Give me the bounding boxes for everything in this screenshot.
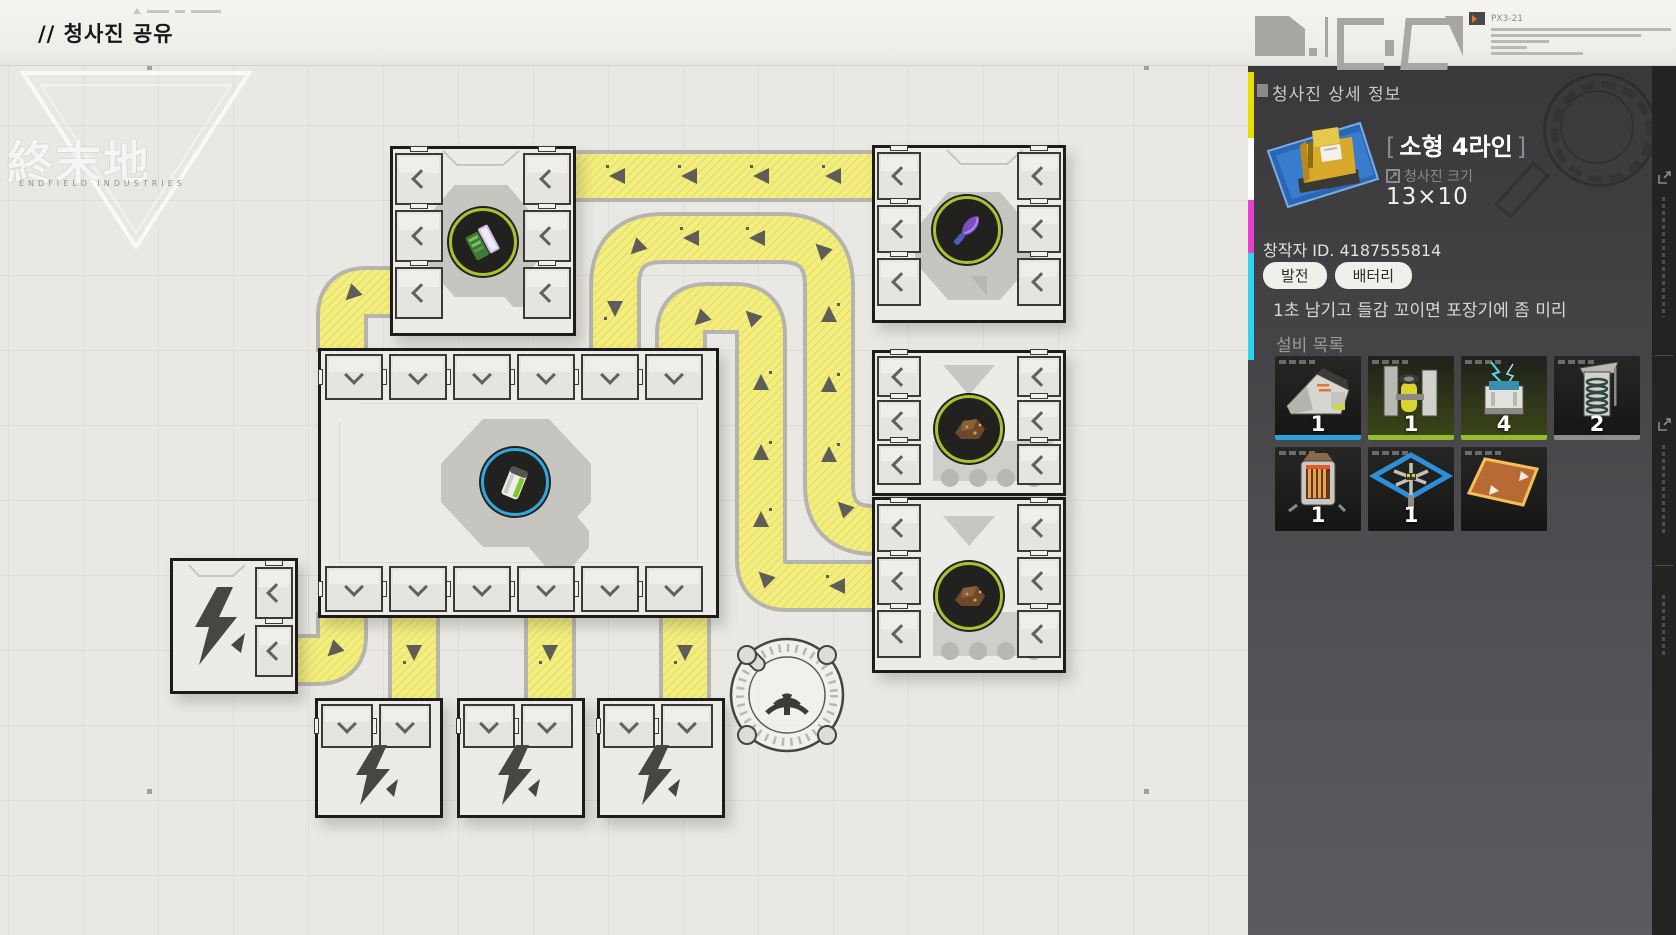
tile-color-bar [1554,435,1640,440]
chevron-left-icon [411,283,431,303]
tile-color-bar [1461,435,1547,440]
bracket: ] [1513,133,1530,161]
triangle-mark-icon [133,8,141,14]
equipment-count: 4 [1461,412,1547,436]
chevron-left-icon [891,624,911,644]
chevron-left-icon [1031,571,1051,591]
equipment-count: 2 [1554,412,1640,436]
creator-id: 창작자 ID. 4187555814 [1263,237,1441,261]
port [389,354,447,400]
port [1017,504,1061,552]
lightning-icon [492,745,552,813]
chevron-down-icon [536,365,556,385]
accent-bar-white [1248,138,1254,200]
strip-divider [1655,565,1673,566]
equipment-tile-generator[interactable]: 4 [1461,356,1547,440]
chevron-down-icon [408,577,428,597]
chevron-left-icon [411,226,431,246]
accent-bar-magenta [1248,200,1254,253]
chevron-left-icon [891,272,911,292]
building-power-plant-3[interactable] [597,698,725,818]
equipment-count: 1 [1368,412,1454,436]
wedge-glyph [1445,16,1463,56]
port [645,566,703,612]
chevron-left-icon [891,166,911,186]
building-main-factory[interactable] [318,348,719,618]
port [1017,444,1061,485]
equipment-tile-packager[interactable]: 1 [1368,447,1454,531]
chevron-left-icon [539,283,559,303]
building-power-plant-1[interactable] [315,698,443,818]
chevron-left-icon [891,411,911,431]
port [1017,205,1061,253]
chevron-left-icon [891,571,911,591]
equipment-count: 1 [1275,412,1361,436]
magnifier-watermark-icon [1543,73,1653,183]
blueprint-name: 소형 4라인 [1399,133,1512,161]
chevron-left-icon [266,641,286,661]
section-square-icon [1257,84,1268,97]
deco-text-lines [1491,28,1671,58]
blueprint-map[interactable]: 終末地 ENDFIELD INDUSTRIES [0,65,1248,935]
chip-icon [1469,12,1485,25]
building-assembler-top-left[interactable] [390,146,576,336]
tag-power: 발전 [1263,262,1327,289]
blueprint-size-row: 청사진 크기 [1386,166,1473,186]
item-icon-ore [935,395,1003,463]
chevron-down-icon [344,365,364,385]
hopper-deco [441,149,521,167]
conveyor-image [1461,451,1547,513]
chevron-down-icon [395,714,415,734]
chevron-left-icon [891,367,911,387]
port [325,354,383,400]
chevron-left-icon [1031,455,1051,475]
chevron-left-icon [891,455,911,475]
square-glyph [1385,40,1394,56]
chevron-down-icon [537,714,557,734]
chevron-down-icon [600,365,620,385]
signal-tower[interactable] [717,625,857,765]
panel-side-strip [1652,65,1676,935]
port [603,704,655,748]
chevron-left-icon [1031,219,1051,239]
equipment-tile-battery-assembler[interactable]: 1 [1368,356,1454,440]
port [1017,557,1061,605]
tile-color-bar [1275,435,1361,440]
chevron-down-icon [536,577,556,597]
lightning-icon [187,587,247,679]
port [517,566,575,612]
port [389,566,447,612]
chevron-down-icon [664,577,684,597]
equipment-count: 1 [1368,503,1454,527]
tile-color-bar [1275,526,1361,531]
hopper-deco [945,148,1025,166]
lightning-icon [632,745,692,813]
tag-battery: 배터리 [1335,262,1412,289]
chevron-down-icon [600,577,620,597]
port [523,210,571,262]
chevron-left-icon [1031,624,1051,644]
tag-list: 발전 배터리 [1263,262,1412,289]
item-icon-battery [481,448,549,516]
equipment-grid: 1 1 [1275,356,1640,531]
port [581,566,639,612]
port [1017,400,1061,441]
port [877,152,921,200]
export-icon[interactable] [1657,417,1672,432]
building-smelter-mid-right[interactable] [872,350,1066,496]
port [877,258,921,306]
dot-mark [1309,48,1317,56]
port [453,566,511,612]
export-icon[interactable] [1657,170,1672,185]
port [453,354,511,400]
document-icon [1255,16,1305,56]
chevron-down-icon [664,365,684,385]
port [1017,152,1061,200]
chevron-down-icon [619,714,639,734]
topbar-right-deco: PX3-21 [1255,10,1655,60]
equipment-tile-crusher[interactable]: 1 [1275,356,1361,440]
port [255,567,293,619]
lightning-icon [350,745,410,813]
size-value: 13×10 [1386,184,1469,210]
chevron-left-icon [539,169,559,189]
port [877,205,921,253]
port [321,704,373,748]
top-bar: // 청사진 공유 PX3-21 [0,0,1676,66]
equipment-tile-storage-tower[interactable]: 2 [1554,356,1640,440]
tile-color-bar [1368,435,1454,440]
port [877,356,921,397]
equipment-tile-heater[interactable]: 1 [1275,447,1361,531]
item-icon-purple-plant [933,196,1001,264]
vertical-text-deco [1662,445,1665,535]
chevron-left-icon [539,226,559,246]
chevron-left-icon [1031,367,1051,387]
port [255,625,293,677]
hopper-deco [187,563,247,579]
accent-bar-yellow [1248,72,1254,138]
page-title: // 청사진 공유 [38,18,174,48]
chevron-left-icon [1031,518,1051,538]
port [661,704,713,748]
chevron-down-icon [408,365,428,385]
port [523,153,571,205]
chevron-left-icon [1031,411,1051,431]
topbar-deco-marks [133,8,221,14]
blueprint-description: 1초 남기고 들감 꼬이면 포장기에 좀 미리 [1273,296,1566,321]
equipment-tile-conveyor[interactable] [1461,447,1547,531]
item-icon-green-circuit [449,208,517,276]
port [395,153,443,205]
building-smelter-bottom-right[interactable] [872,497,1066,673]
port [1017,610,1061,658]
port [521,704,573,748]
port [463,704,515,748]
strip-divider [1655,355,1673,356]
port [877,400,921,441]
equipment-list-title: 설비 목록 [1276,331,1344,356]
port [877,444,921,485]
bracket-glyph-icon [1337,18,1384,70]
port [581,354,639,400]
chevron-down-icon [472,577,492,597]
chevron-down-icon [337,714,357,734]
grid-corner-marker [1144,789,1149,794]
tile-color-bar [1368,526,1454,531]
port [325,566,383,612]
chevron-left-icon [1031,272,1051,292]
accent-bar-cyan [1248,253,1254,360]
port [379,704,431,748]
size-label: 청사진 크기 [1404,166,1473,186]
port [517,354,575,400]
chevron-left-icon [1031,166,1051,186]
smelter-deco [943,365,995,395]
blueprint-title: [소형 4라인] [1382,127,1530,162]
chevron-left-icon [891,518,911,538]
equipment-count: 1 [1275,503,1361,527]
chevron-down-icon [677,714,697,734]
vertical-text-deco [1662,197,1665,317]
vertical-text-deco [1662,595,1665,655]
tile-color-bar [1461,526,1547,531]
size-expand-icon [1386,169,1400,183]
bracket: [ [1382,133,1399,161]
shadow-notch [971,276,987,296]
port [877,557,921,605]
divider-bar [1325,17,1328,57]
smelter-deco [943,516,995,546]
building-power-plant-left[interactable] [170,558,298,694]
grid-corner-marker [147,789,152,794]
port [877,504,921,552]
chevron-down-icon [344,577,364,597]
port [395,210,443,262]
port [1017,258,1061,306]
port [523,267,571,319]
chevron-left-icon [891,219,911,239]
building-assembler-top-right[interactable] [872,145,1066,323]
building-power-plant-2[interactable] [457,698,585,818]
chevron-down-icon [479,714,499,734]
port [1017,356,1061,397]
panel-section-title: 청사진 상세 정보 [1272,80,1401,105]
item-icon-ore [935,562,1003,630]
chevron-down-icon [472,365,492,385]
blueprint-thumbnail [1262,117,1384,211]
blueprint-share-screen: // 청사진 공유 PX3-21 終末地 EN [0,0,1676,935]
chevron-left-icon [411,169,431,189]
port [395,267,443,319]
deco-code: PX3-21 [1491,14,1523,24]
port [877,610,921,658]
blueprint-detail-panel: 청사진 상세 정보 [소형 4라인] 청사진 크기 13×10 창작자 ID. … [1248,65,1676,935]
chevron-left-icon [266,583,286,603]
port [645,354,703,400]
